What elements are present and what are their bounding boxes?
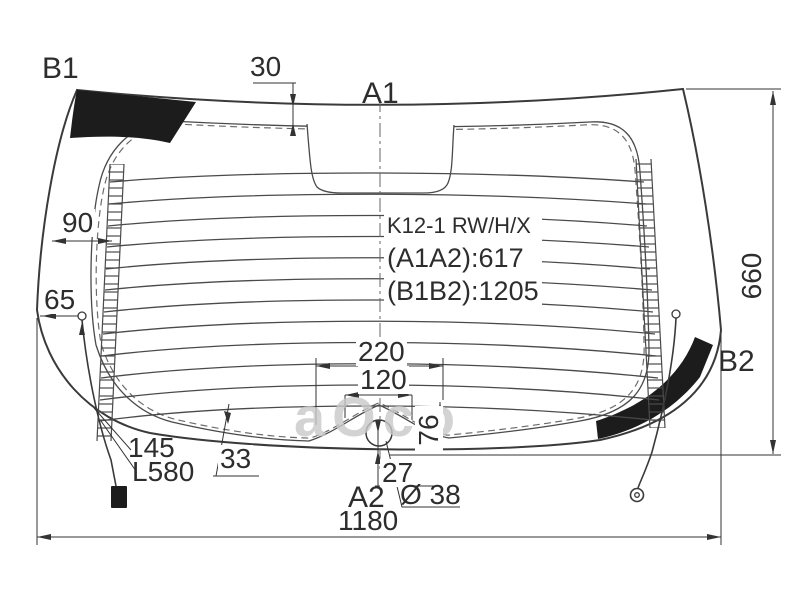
dim-hump-height: 76 bbox=[415, 406, 443, 454]
part-info-block: K12-1 RW/H/X (A1A2):617 (B1B2):1205 bbox=[384, 212, 542, 310]
part-a-distance: (A1A2):617 bbox=[387, 243, 539, 274]
dim-glass-width: 1180 bbox=[338, 507, 398, 535]
dim-top-band: 30 bbox=[250, 53, 281, 81]
dim-edge-to-terminal: 65 bbox=[42, 286, 77, 314]
label-b2: B2 bbox=[718, 347, 755, 377]
dim-hump-outer: 220 bbox=[356, 338, 407, 366]
dim-wire-length: L580 bbox=[132, 458, 194, 486]
part-model-code: K12-1 RW/H/X bbox=[387, 213, 539, 239]
dim-bottom-band: 33 bbox=[218, 445, 253, 473]
dim-edge-to-busbar: 90 bbox=[60, 209, 95, 237]
label-a1: A1 bbox=[362, 79, 399, 109]
dim-hump-inner: 120 bbox=[358, 366, 409, 394]
rear-window-technical-drawing: aOco B1 A1 B2 A2 30 90 65 660 1180 220 1… bbox=[0, 0, 800, 600]
dim-hole-diameter: Ø 38 bbox=[400, 481, 461, 509]
label-b1: B1 bbox=[42, 54, 79, 84]
part-b-distance: (B1B2):1205 bbox=[387, 276, 539, 307]
right-wire-eyelet bbox=[631, 489, 644, 502]
dim-glass-height: 660 bbox=[738, 246, 766, 306]
left-terminal bbox=[78, 312, 86, 320]
left-busbar bbox=[97, 164, 124, 441]
left-wire-connector bbox=[111, 486, 127, 508]
right-terminal bbox=[672, 310, 680, 318]
